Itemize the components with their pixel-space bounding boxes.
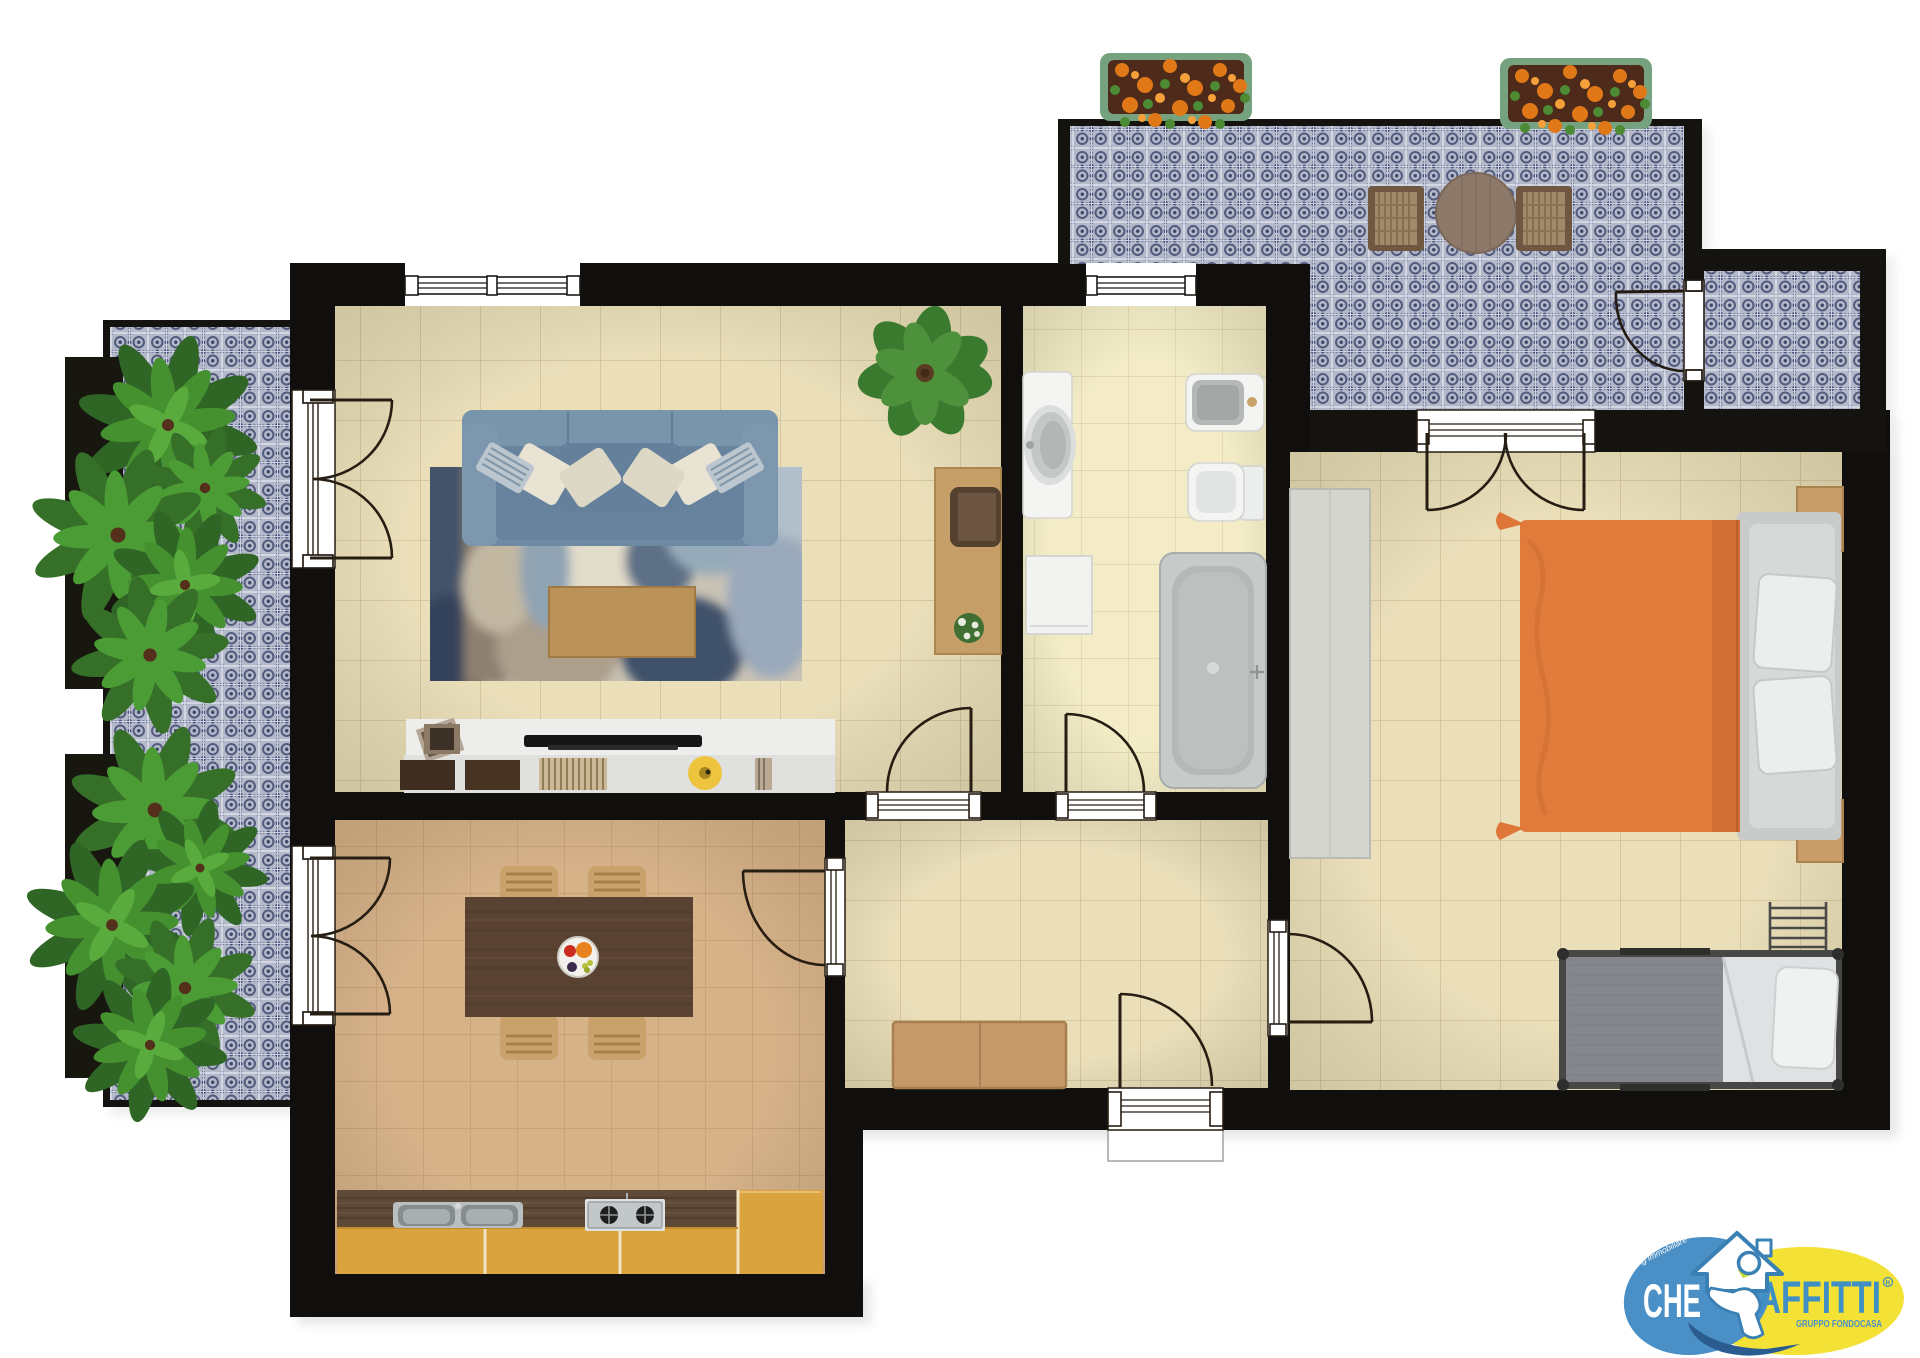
svg-text:AFFITTI: AFFITTI	[1757, 1272, 1881, 1323]
svg-text:GRUPPO FONDOCASA: GRUPPO FONDOCASA	[1796, 1319, 1882, 1330]
svg-text:CHE: CHE	[1643, 1274, 1701, 1327]
svg-text:R: R	[1886, 1280, 1891, 1287]
